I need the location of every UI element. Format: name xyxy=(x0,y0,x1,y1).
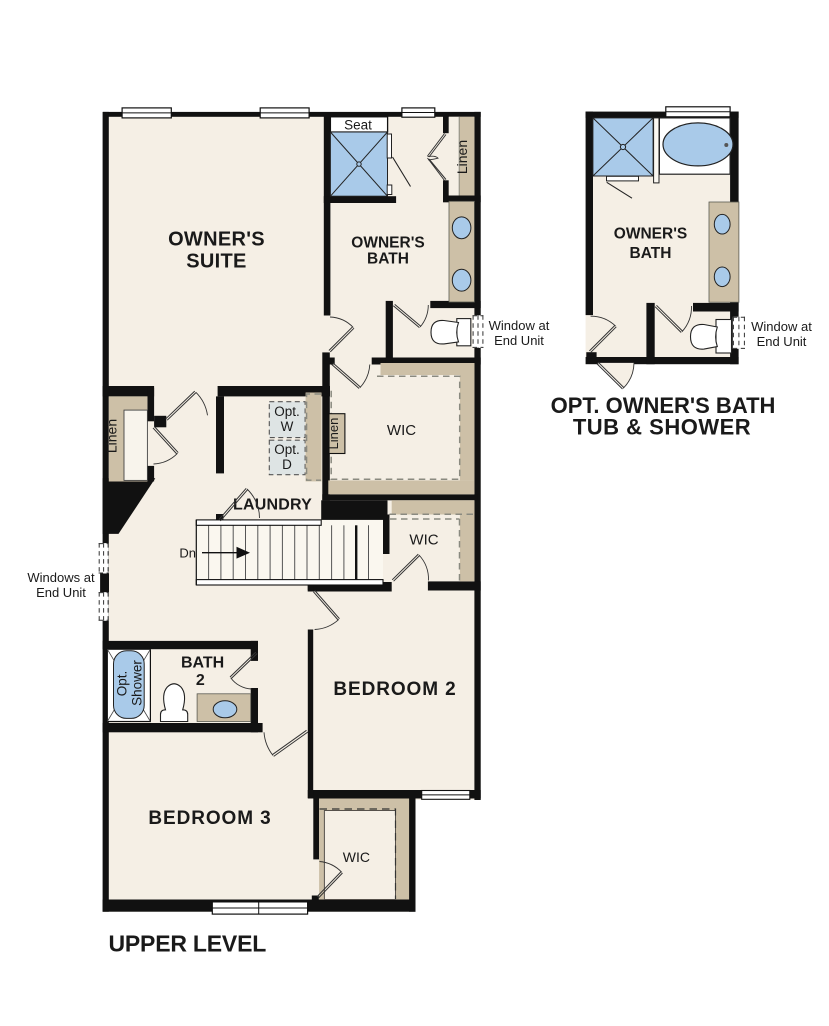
svg-text:WIC: WIC xyxy=(343,849,370,865)
svg-text:Opt.: Opt. xyxy=(115,671,130,697)
svg-text:2: 2 xyxy=(196,672,205,689)
svg-text:BEDROOM 2: BEDROOM 2 xyxy=(333,679,456,700)
svg-text:Dn: Dn xyxy=(179,546,196,561)
svg-text:W: W xyxy=(281,419,294,434)
svg-text:Window at: Window at xyxy=(751,319,812,334)
svg-text:End Unit: End Unit xyxy=(494,333,544,348)
svg-text:End Unit: End Unit xyxy=(36,585,86,600)
svg-text:End Unit: End Unit xyxy=(757,334,807,349)
svg-text:UPPER LEVEL: UPPER LEVEL xyxy=(109,931,267,957)
svg-text:BATH: BATH xyxy=(181,655,224,672)
svg-text:OWNER'S: OWNER'S xyxy=(614,226,687,243)
svg-text:LAUNDRY: LAUNDRY xyxy=(233,497,312,514)
svg-text:WIC: WIC xyxy=(387,422,416,439)
svg-text:TUB & SHOWER: TUB & SHOWER xyxy=(573,415,751,440)
svg-text:Opt.: Opt. xyxy=(274,404,300,419)
svg-text:D: D xyxy=(282,457,292,472)
svg-text:Opt.: Opt. xyxy=(274,442,300,457)
svg-text:OWNER'S: OWNER'S xyxy=(351,235,424,252)
svg-text:BATH: BATH xyxy=(367,251,409,268)
svg-text:WIC: WIC xyxy=(409,532,438,549)
svg-text:Window at: Window at xyxy=(489,318,550,333)
svg-text:BATH: BATH xyxy=(630,245,672,262)
svg-text:SUITE: SUITE xyxy=(186,251,246,273)
svg-text:Windows at: Windows at xyxy=(27,570,95,585)
svg-text:Linen: Linen xyxy=(104,419,120,453)
svg-text:Linen: Linen xyxy=(326,418,341,450)
svg-text:Shower: Shower xyxy=(130,660,145,706)
svg-text:Seat: Seat xyxy=(344,118,372,133)
svg-text:BEDROOM 3: BEDROOM 3 xyxy=(148,808,271,829)
svg-text:OWNER'S: OWNER'S xyxy=(168,229,265,251)
svg-text:Linen: Linen xyxy=(454,140,470,174)
